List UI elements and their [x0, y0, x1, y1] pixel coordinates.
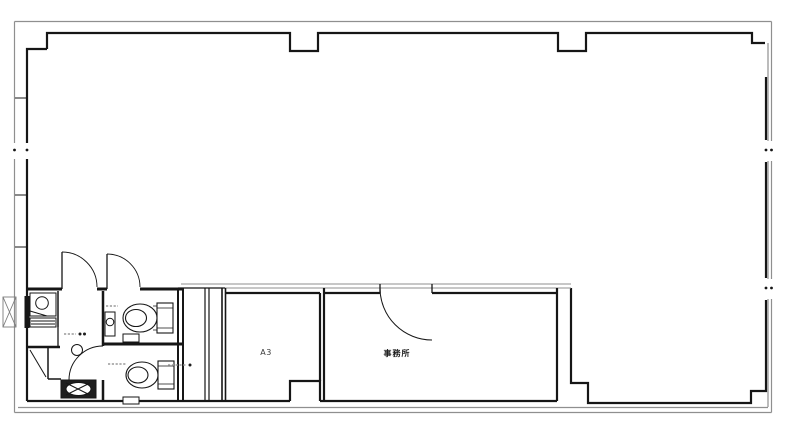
sink-icon: [30, 293, 58, 346]
floor-drain-icon: [72, 345, 83, 356]
door-arc-2: [107, 254, 140, 287]
room-a3-label: A3: [260, 348, 272, 357]
washroom-entry-doors: [62, 252, 140, 289]
corridor-wall: [181, 284, 571, 288]
door-arc-1: [62, 252, 97, 287]
toilet-icon-upper: [123, 303, 173, 333]
mop-sink-icon: [61, 380, 96, 398]
room-office-label: 事務所: [384, 348, 411, 358]
corner-basin-icon: [105, 312, 115, 336]
closet-door-line: [30, 350, 46, 377]
office-door-arc: [380, 288, 432, 340]
stall-door-arc: [69, 346, 103, 380]
wall-poche: [25, 296, 30, 328]
floor-plan-canvas: A3 事務所: [0, 0, 787, 433]
room-a3: [222, 288, 320, 401]
expansion-joint-dots: [13, 149, 773, 290]
toilet-icon-lower: [126, 361, 174, 389]
room-office: [324, 284, 557, 401]
duct-walls: [178, 288, 225, 401]
exterior-walls: [27, 33, 766, 403]
floor-plan-svg: A3 事務所: [0, 0, 787, 433]
